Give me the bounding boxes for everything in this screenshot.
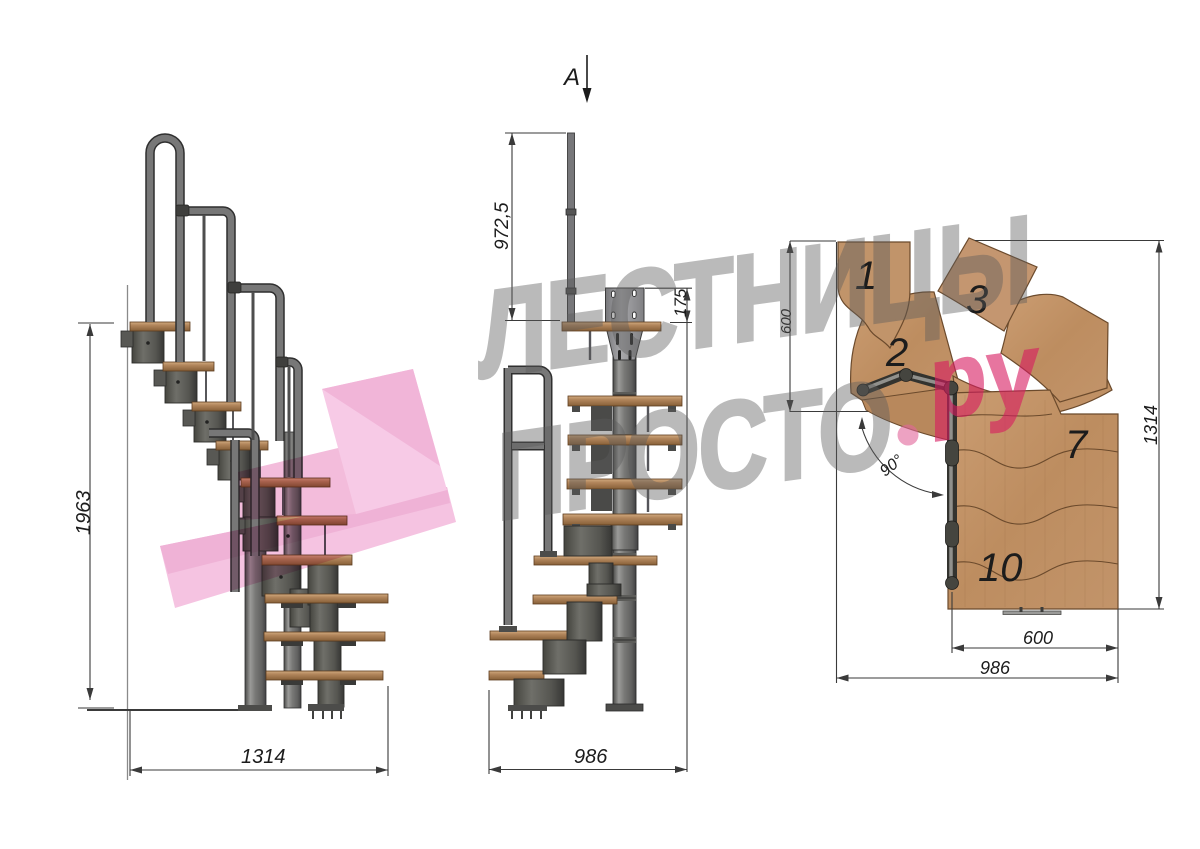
svg-text:1314: 1314 xyxy=(241,746,286,768)
svg-text:600: 600 xyxy=(1023,628,1053,648)
svg-text:A: A xyxy=(562,64,580,91)
svg-text:972,5: 972,5 xyxy=(492,202,513,250)
svg-text:1314: 1314 xyxy=(1141,405,1161,445)
svg-text:7: 7 xyxy=(1065,423,1089,467)
svg-text:1963: 1963 xyxy=(73,491,95,536)
svg-text:986: 986 xyxy=(574,746,608,768)
svg-text:ру: ру xyxy=(929,309,1039,443)
svg-text:986: 986 xyxy=(980,658,1011,678)
svg-text:10: 10 xyxy=(978,546,1023,590)
